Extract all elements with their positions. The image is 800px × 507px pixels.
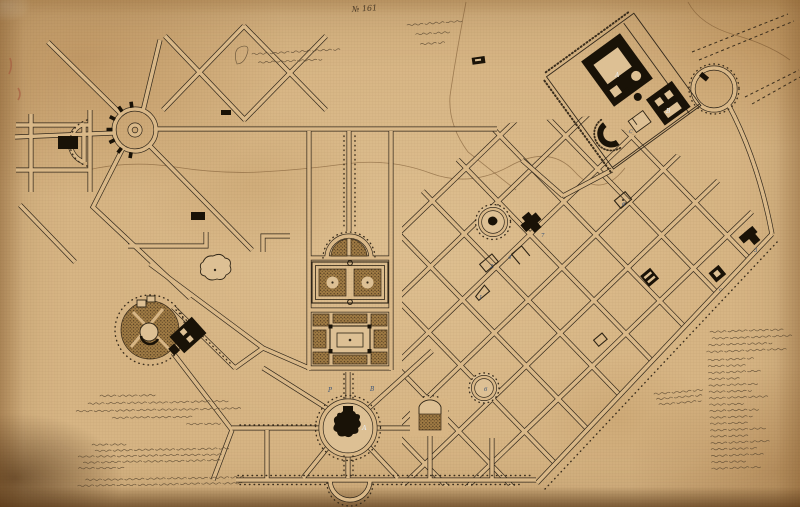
label-circle-6: 6 [484,387,488,393]
organic-pond [200,254,231,280]
bottom-note-1-line [112,416,194,419]
label-palace-b: B [665,108,671,115]
bottom-note-2-line [78,467,124,470]
top-note-left [235,41,341,65]
legend-items-line [709,377,740,380]
small-building-1 [191,212,205,220]
top-note-right [407,20,464,46]
legend-items-line [712,466,761,469]
aged-paper-sheet: Historical manuscript town plan, aged pa… [0,0,800,507]
legend-items-line [708,364,747,367]
second-palace-block [646,81,691,126]
label-site-6: 6 [622,202,626,208]
legend-items-line [710,422,749,425]
label-block-p: P [327,387,333,394]
label-site-4: 4 [507,255,512,261]
isolated-farm-building [472,56,486,65]
small-building-2 [221,110,231,115]
bottom-note-2-line [95,448,229,452]
street-grid [188,0,800,507]
legend-items-line [709,395,769,399]
bottom-note-1-line [100,394,155,397]
legend-items-line [711,434,750,437]
plaza-rim-building [106,128,112,132]
legend-items-line [709,383,758,386]
plaza-pond [333,410,360,437]
legend-margin-note-line [654,389,703,395]
top-note-right-line [416,31,450,35]
bottom-note-2-line [78,482,244,487]
legend-items-line [711,440,771,444]
legend-items-line [710,415,752,418]
round-plaza-small-5 [476,205,510,239]
legend-items-line [708,358,754,361]
top-note-left-flourish [235,46,249,64]
legend-header-line [707,348,789,353]
top-note-right-line [420,42,444,45]
label-pond-a: A [361,424,367,432]
top-note-right-line [407,20,462,26]
top-note-left-line [258,58,322,63]
legend-header [706,328,794,353]
label-site-1: 1 [479,295,483,301]
legend-header-line [712,335,794,340]
label-site-2: 2 [489,264,494,270]
doc-number: № 161 [351,3,378,14]
label-block-b: B [369,386,375,393]
legend-items-line [710,428,765,432]
label-palace-a: A [614,72,620,79]
bottom-note-2-line [86,476,244,481]
plaza-rim-building [128,152,133,159]
label-palace-c: C [629,129,633,135]
legend-items-line [708,370,760,374]
chapel-with-court [410,398,448,436]
bottom-note-2-line [78,453,223,457]
small-outline-building [594,333,608,346]
plan-drawing: Historical manuscript town plan, aged pa… [0,0,800,507]
label-site-3: 3 [754,248,758,254]
legend-items-line [709,390,751,393]
legend-items-line [711,447,757,450]
legend-items-line [710,403,744,406]
legend-items-line [710,409,759,412]
legend-margin-note-line [659,400,701,405]
legend-header-line [708,342,772,346]
legend-margin-note [654,389,704,406]
west-court-building [58,136,78,149]
bottom-note-1-line [186,423,220,425]
legend-items-line [712,460,746,463]
legend-items-line [711,453,763,457]
legend-margin-note-line [656,394,702,400]
bottom-note-2-line [92,444,126,446]
label-site-c: c [719,287,722,293]
legend-header-line [710,328,783,332]
bottom-note-1-line [88,400,228,404]
bottom-note-2-line [83,459,220,463]
plaza-rim-building [129,102,133,108]
legend-items [708,357,772,470]
label-site-7: 7 [541,233,545,239]
building-c [709,265,727,283]
